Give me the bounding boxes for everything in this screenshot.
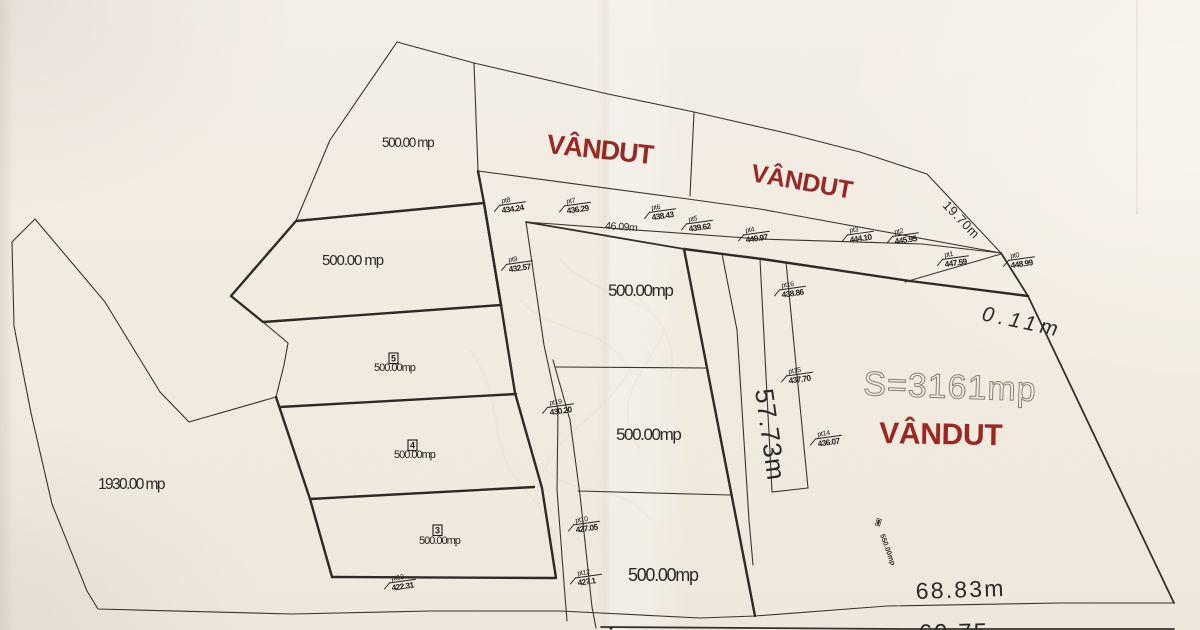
svg-text:500.00 mp: 500.00 mp bbox=[382, 135, 434, 150]
svg-text:500.00mp: 500.00mp bbox=[394, 449, 436, 461]
svg-text:46.09m: 46.09m bbox=[605, 220, 639, 234]
svg-text:500.00mp: 500.00mp bbox=[374, 362, 416, 374]
svg-text:VÂNDUT: VÂNDUT bbox=[879, 416, 1003, 452]
svg-text:69.75: 69.75 bbox=[919, 619, 990, 630]
svg-text:S=3161mp: S=3161mp bbox=[863, 365, 1038, 409]
svg-text:500.00 mp: 500.00 mp bbox=[322, 252, 384, 269]
svg-text:68.83m: 68.83m bbox=[915, 575, 1006, 604]
svg-text:500.00mp: 500.00mp bbox=[419, 535, 461, 547]
svg-text:500.00mp: 500.00mp bbox=[616, 425, 681, 444]
svg-text:500.00mp: 500.00mp bbox=[608, 281, 673, 300]
svg-text:500.00mp: 500.00mp bbox=[628, 565, 699, 585]
svg-text:1930.00 mp: 1930.00 mp bbox=[98, 476, 165, 493]
